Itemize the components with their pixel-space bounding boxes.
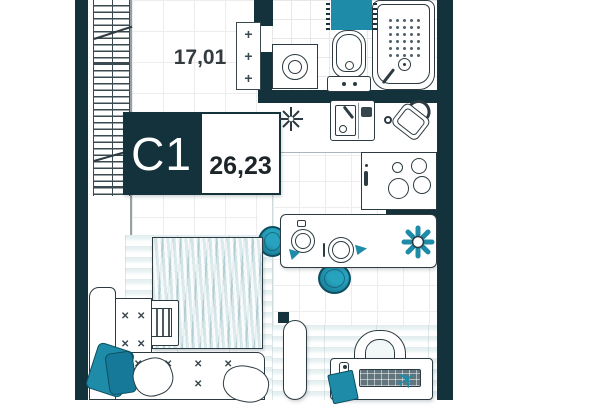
desk-lamp-dot — [343, 365, 347, 369]
radiator: + + + — [236, 22, 261, 90]
plate — [328, 237, 354, 263]
toilet-button — [353, 82, 357, 86]
sink-divider — [358, 103, 359, 139]
washer-drum-inner — [288, 60, 302, 74]
apartment-floor-plan: 17,01 C1 26,23 + + + — [75, 0, 455, 400]
fork — [323, 243, 325, 257]
toilet-icon — [327, 28, 371, 92]
kitchen-sink-icon — [330, 100, 375, 141]
wall-right — [437, 0, 453, 400]
washing-machine-icon — [272, 44, 318, 89]
unit-area-badge: 26,23 — [200, 112, 281, 195]
sink-drain — [339, 125, 347, 133]
plant-icon — [399, 223, 437, 261]
radio — [149, 308, 172, 337]
bath-mat — [331, 0, 372, 30]
sink-board — [361, 107, 372, 117]
window-glazing-line — [112, 0, 114, 196]
toilet-button — [342, 82, 346, 86]
bar-counter — [280, 214, 437, 268]
counter-knob — [384, 116, 392, 124]
room-area-label: 17,01 — [160, 46, 240, 70]
window-sash-mark — [94, 26, 133, 40]
bathtub-drain-dot — [403, 63, 406, 66]
wall-left — [75, 0, 88, 400]
napkin — [355, 243, 367, 255]
ceiling-lamp-icon — [278, 106, 304, 132]
bathtub-icon — [372, 0, 435, 90]
window-divider — [94, 62, 129, 64]
stove-icon — [361, 152, 437, 210]
toilet-tank — [327, 76, 371, 92]
burner — [413, 176, 431, 194]
unit-code-badge: C1 — [123, 112, 200, 195]
toilet-drain — [345, 61, 354, 70]
burner — [411, 158, 427, 174]
bathtub-shower-dots — [387, 17, 423, 57]
stove-handle — [364, 171, 368, 186]
burner — [392, 162, 403, 173]
stove-knob — [365, 164, 368, 167]
burner — [388, 178, 409, 199]
floor-plan-page: { "plan_card": { "unit_code": "C1", "uni… — [0, 0, 600, 400]
plate — [291, 229, 315, 253]
door-leaf — [283, 320, 307, 400]
cup — [297, 220, 306, 227]
